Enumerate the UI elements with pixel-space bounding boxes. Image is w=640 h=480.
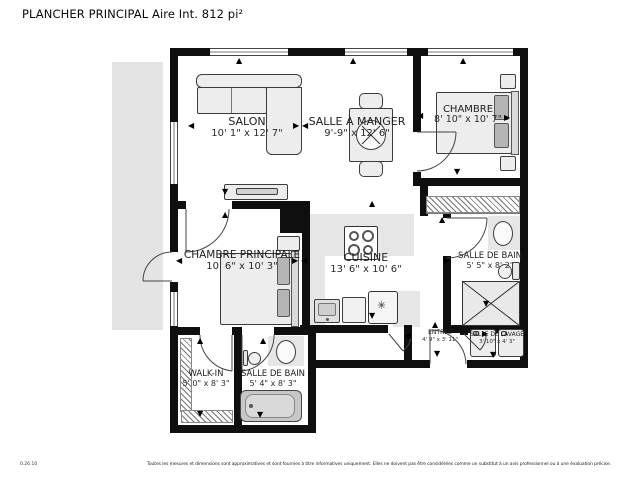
measure-arrow-icon [292,257,298,265]
measure-arrow-icon [432,321,438,329]
measure-arrow-icon [504,114,510,122]
measure-arrow-icon [369,200,375,208]
room-label-entree: ENTRÉE 4' 9" x 3' 11" [412,330,468,343]
measure-arrow-icon [350,57,356,65]
measure-arrow-icon [483,300,489,308]
measure-arrow-icon [222,211,228,219]
room-label-cuisine: CUISINE 13' 6" x 10' 6" [306,252,426,275]
room-label-chambre-principale: CHAMBRE PRINCIPALE 10' 6" x 10' 3" [175,250,309,272]
door-swing-arcs [0,0,640,480]
measure-arrow-icon [176,257,182,265]
measure-arrow-icon [439,216,445,224]
measure-arrow-icon [222,188,228,196]
measure-arrow-icon [454,168,460,176]
measure-arrow-icon [490,351,496,359]
measure-arrow-icon [260,337,266,345]
measure-arrow-icon [417,112,423,120]
room-label-salle-a-manger: SALLE À MANGER 9'-9" x 12' 6" [292,116,422,139]
measure-arrow-icon [197,410,203,418]
measure-arrow-icon [405,332,411,340]
measure-arrow-icon [460,57,466,65]
measure-arrow-icon [302,122,308,130]
measure-arrow-icon [482,330,488,338]
measure-arrow-icon [434,350,440,358]
measure-arrow-icon [369,312,375,320]
measure-arrow-icon [188,122,194,130]
room-label-salle-de-lavage: SALLE DE LAVAGE 3' 10" x 4' 3" [462,332,532,345]
measure-arrow-icon [301,257,307,265]
room-label-salle-de-bain: SALLE DE BAIN 5' 5" x 8' 2" [448,252,532,270]
room-label-salle-de-bain-2: SALLE DE BAIN 5' 4" x 8' 3" [234,370,312,388]
measure-arrow-icon [257,411,263,419]
floor-plan-page: PLANCHER PRINCIPAL Aire Int. 812 pi² [0,0,640,480]
measure-arrow-icon [236,57,242,65]
room-label-walk-in: WALK-IN 5' 0" x 8' 3" [177,370,235,388]
measure-arrow-icon [197,337,203,345]
measure-arrow-icon [293,122,299,130]
measure-arrow-icon [444,257,450,265]
